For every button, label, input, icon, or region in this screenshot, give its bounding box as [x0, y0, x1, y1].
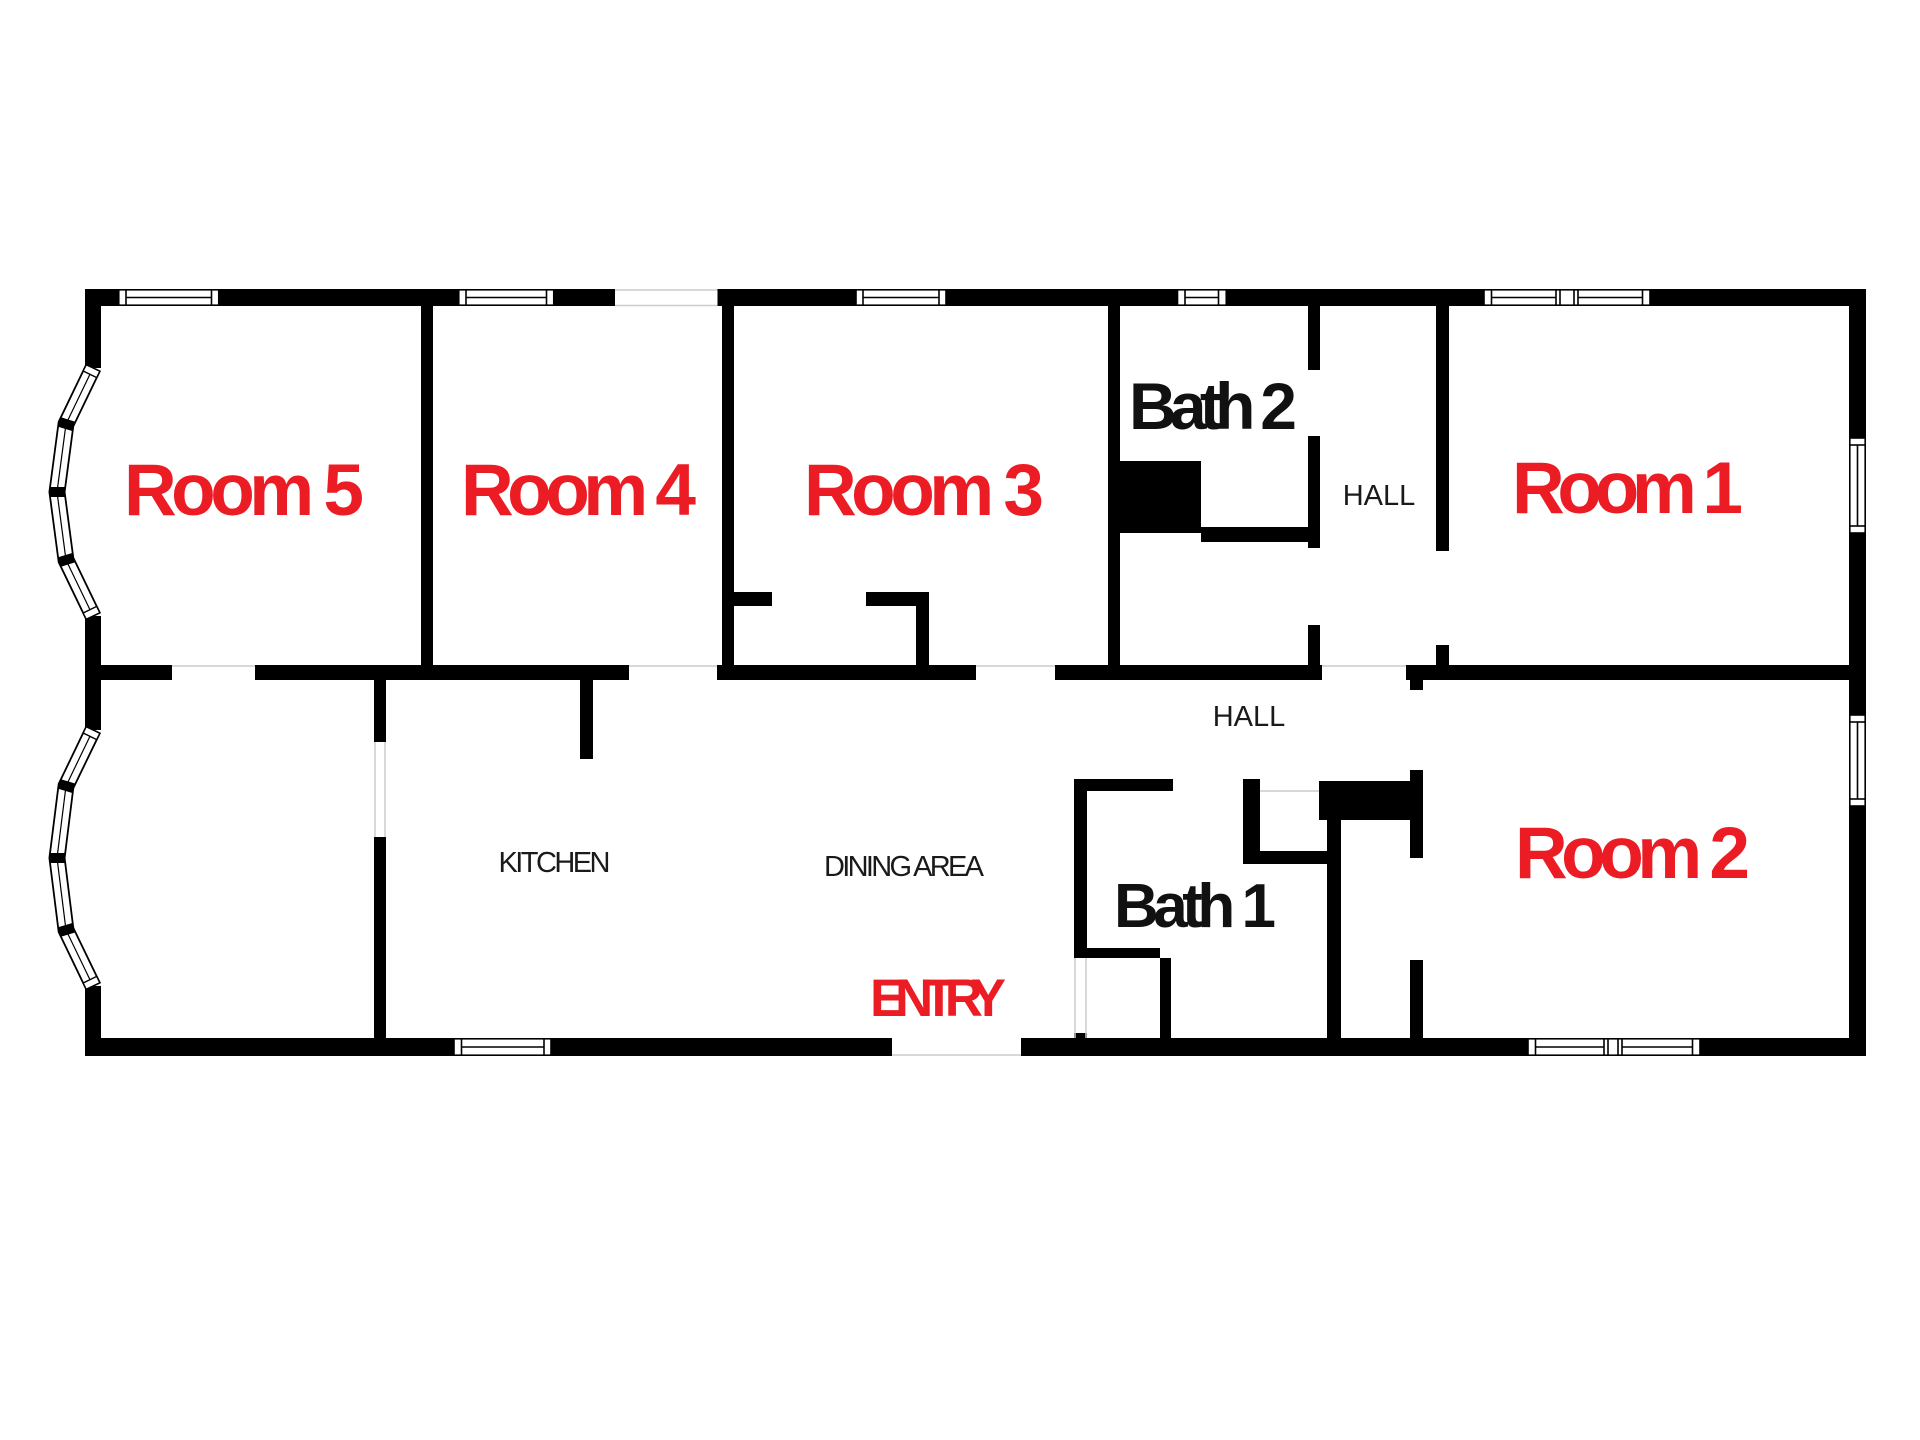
svg-text:Bath 2: Bath 2 [1129, 369, 1297, 443]
svg-text:ENTRY: ENTRY [870, 969, 1006, 1028]
svg-text:KITCHEN: KITCHEN [499, 847, 611, 879]
svg-text:Bath 1: Bath 1 [1114, 872, 1276, 941]
svg-text:Room 2: Room 2 [1515, 813, 1750, 894]
svg-text:Room 4: Room 4 [461, 450, 696, 531]
svg-text:HALL: HALL [1213, 701, 1286, 733]
svg-text:Room 5: Room 5 [124, 450, 364, 531]
svg-text:Room 3: Room 3 [804, 450, 1044, 531]
svg-text:DINING AREA: DINING AREA [824, 851, 985, 883]
svg-text:Room 1: Room 1 [1512, 448, 1743, 529]
svg-text:HALL: HALL [1343, 480, 1416, 512]
